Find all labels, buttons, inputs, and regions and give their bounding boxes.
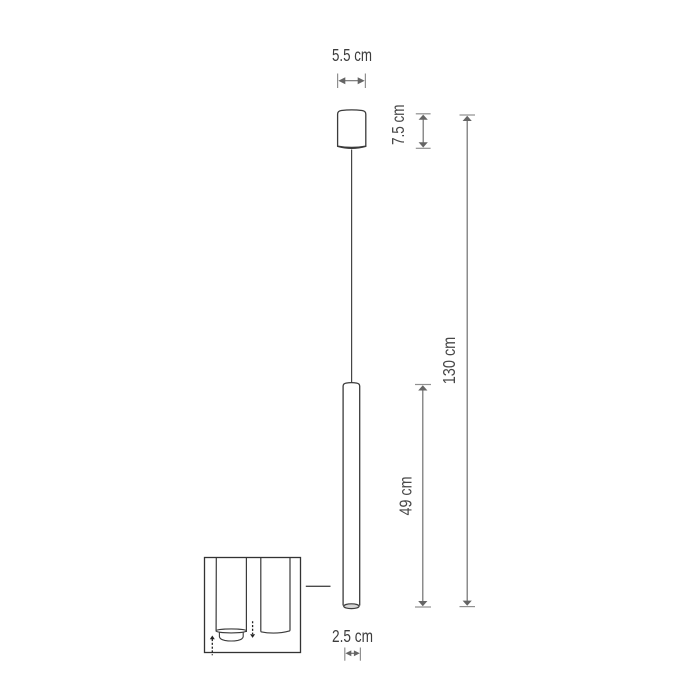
svg-text:49 cm: 49 cm [396, 477, 416, 516]
svg-text:130 cm: 130 cm [439, 337, 459, 385]
svg-text:2.5 cm: 2.5 cm [332, 626, 373, 646]
svg-text:7.5 cm: 7.5 cm [388, 104, 408, 145]
svg-text:5.5 cm: 5.5 cm [332, 45, 372, 65]
